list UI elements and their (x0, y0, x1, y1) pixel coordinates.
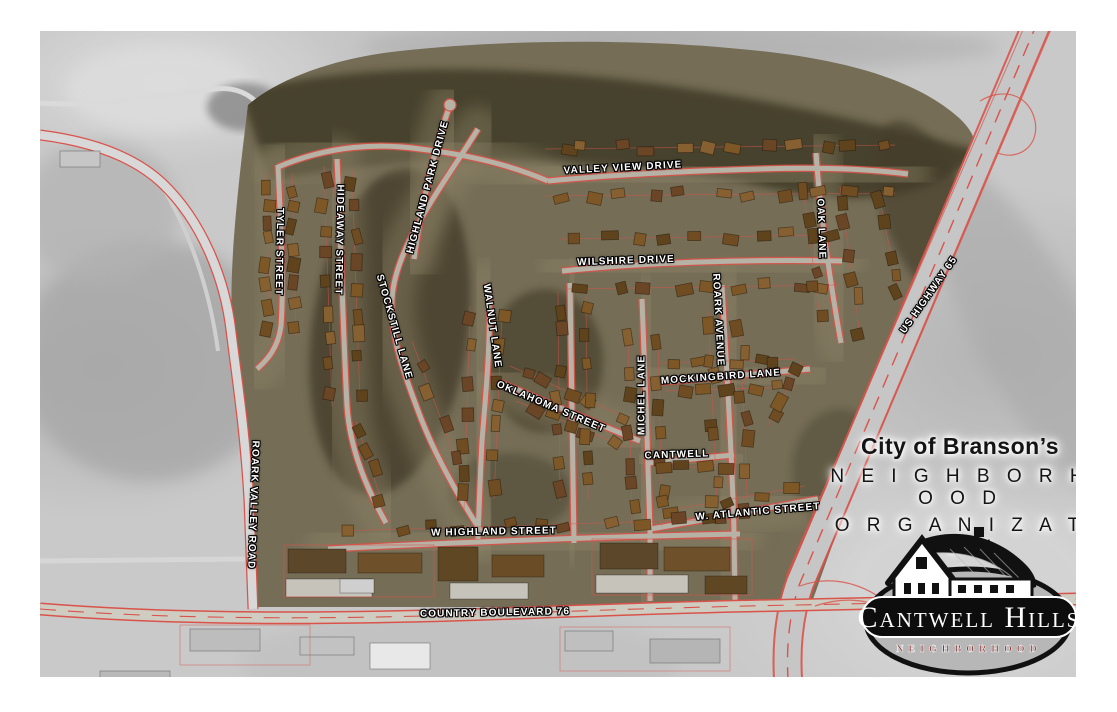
barn-icon (888, 527, 1036, 601)
cantwell-hills-badge: Cantwell Hills NEIGHBORHOOD (846, 519, 1076, 677)
aerial-map: VALLEY VIEW DRIVEWILSHIRE DRIVEOAK LANET… (40, 31, 1076, 677)
title-line-2: N E I G H B O R H O O D (830, 466, 1076, 510)
badge-name-text: Cantwell Hills (858, 601, 1076, 634)
badge-graphic: Cantwell Hills NEIGHBORHOOD (846, 519, 1076, 677)
badge-subtitle-text: NEIGHBORHOOD (896, 644, 1042, 655)
map-poster: VALLEY VIEW DRIVEWILSHIRE DRIVEOAK LANET… (0, 0, 1117, 712)
title-line-1: City of Branson’s (830, 433, 1076, 460)
